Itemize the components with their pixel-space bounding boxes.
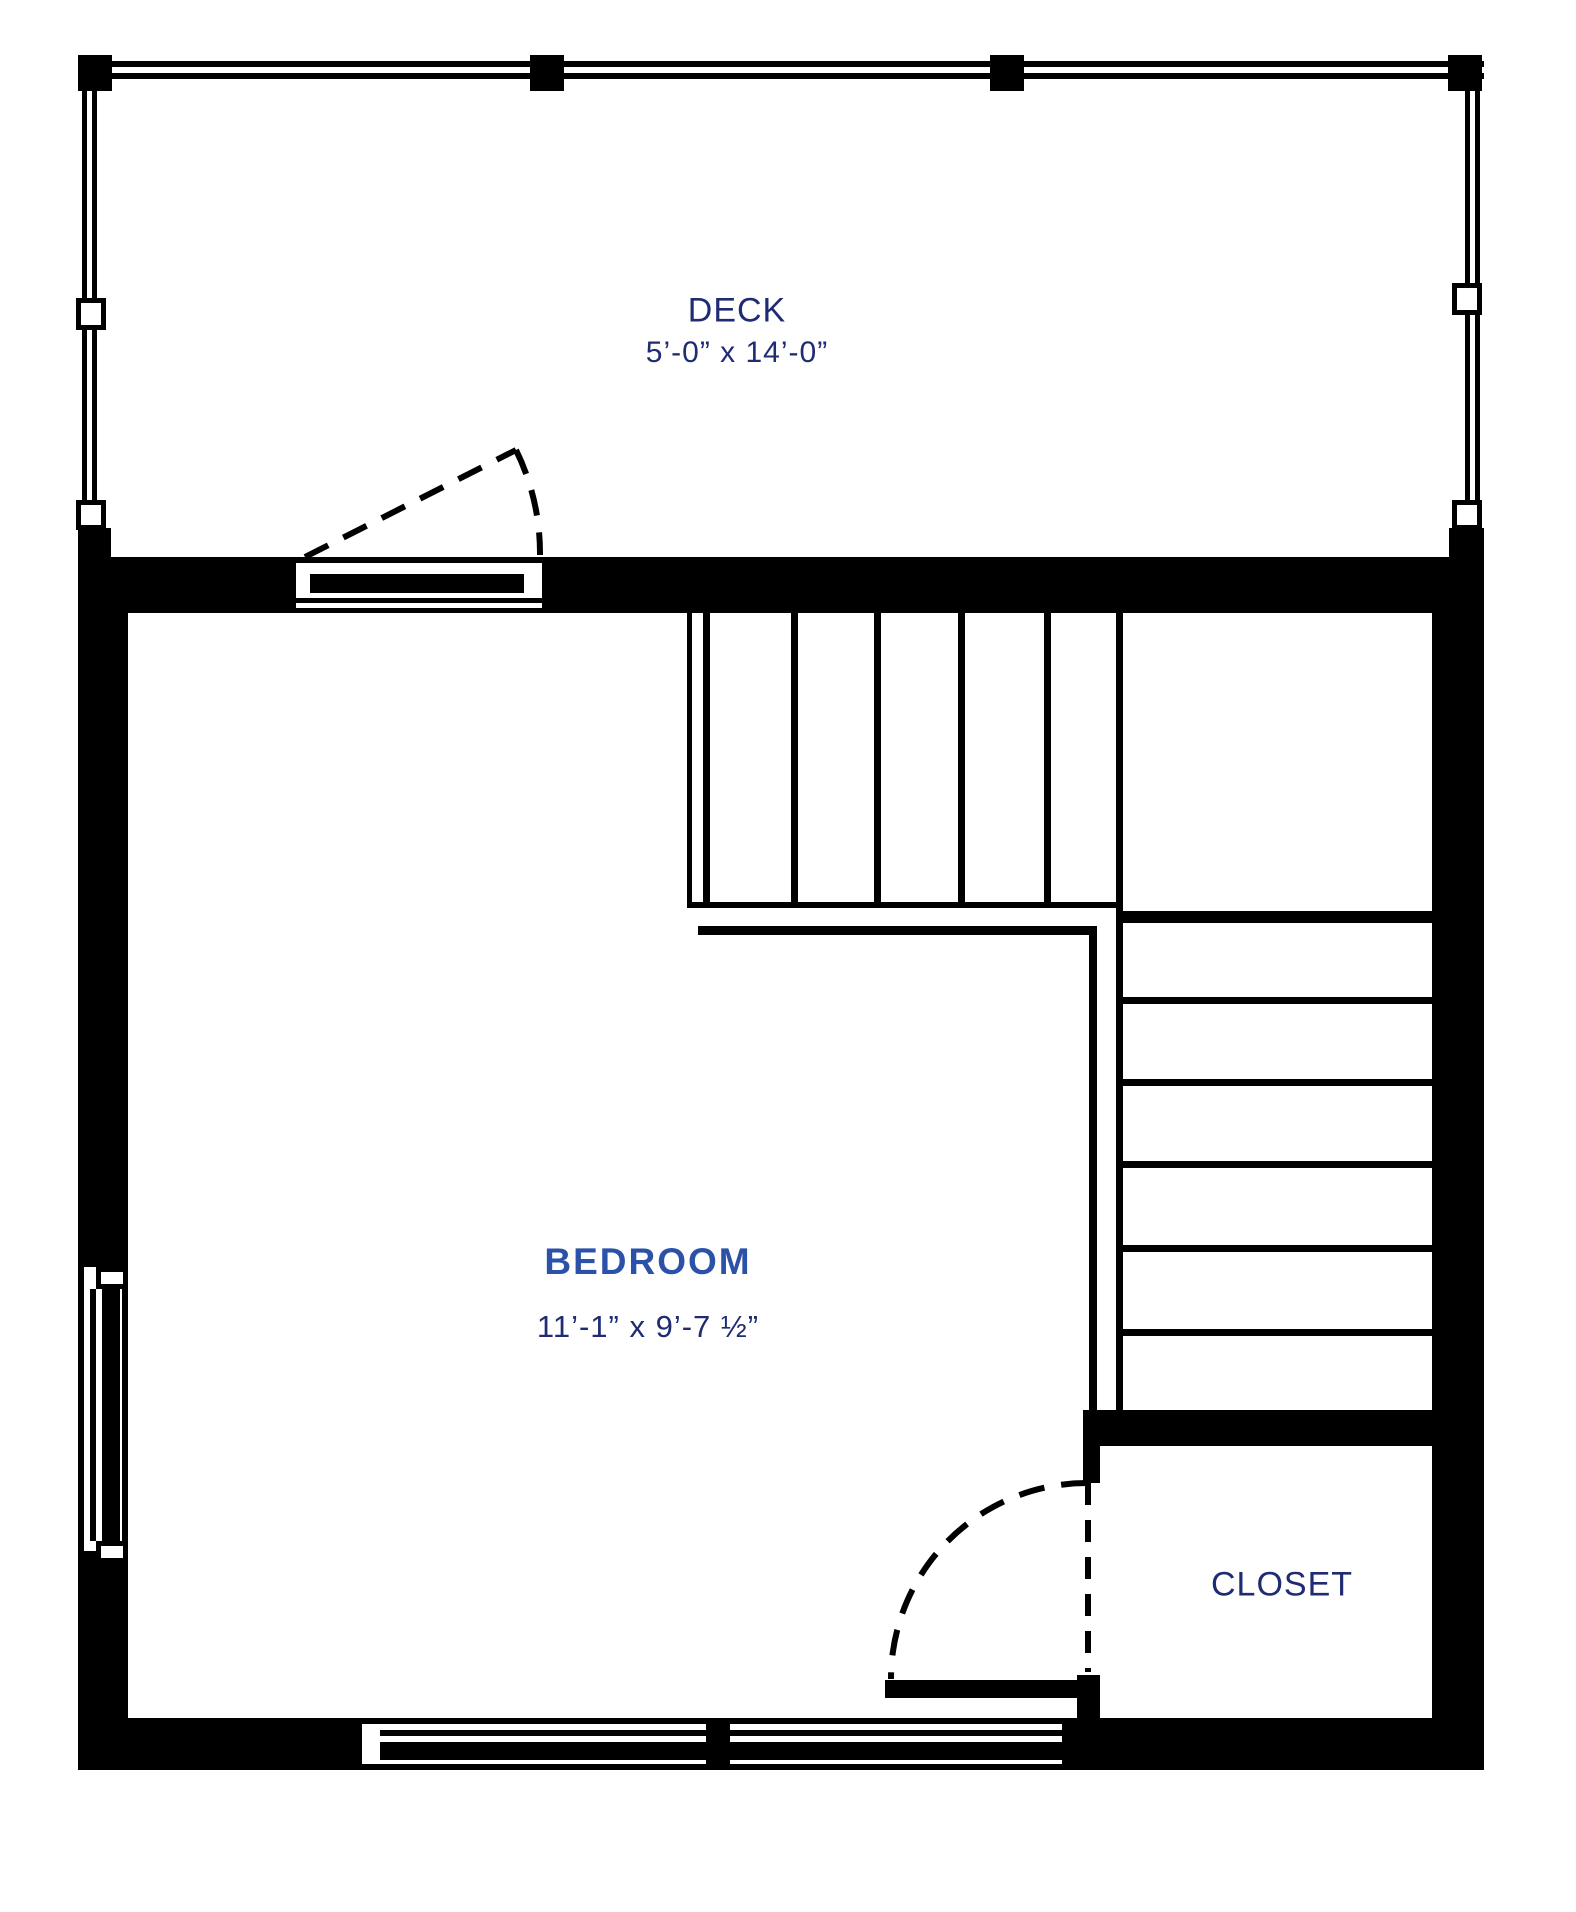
- deck-door-swing-leaf-line: [305, 450, 516, 557]
- deck-door-swing-arc: [516, 450, 540, 555]
- closet-door-swing-arc: [891, 1483, 1087, 1679]
- door-swing-overlay: [0, 0, 1576, 1912]
- floor-plan-canvas: DECK 5’-0” x 14’-0” B: [0, 0, 1576, 1912]
